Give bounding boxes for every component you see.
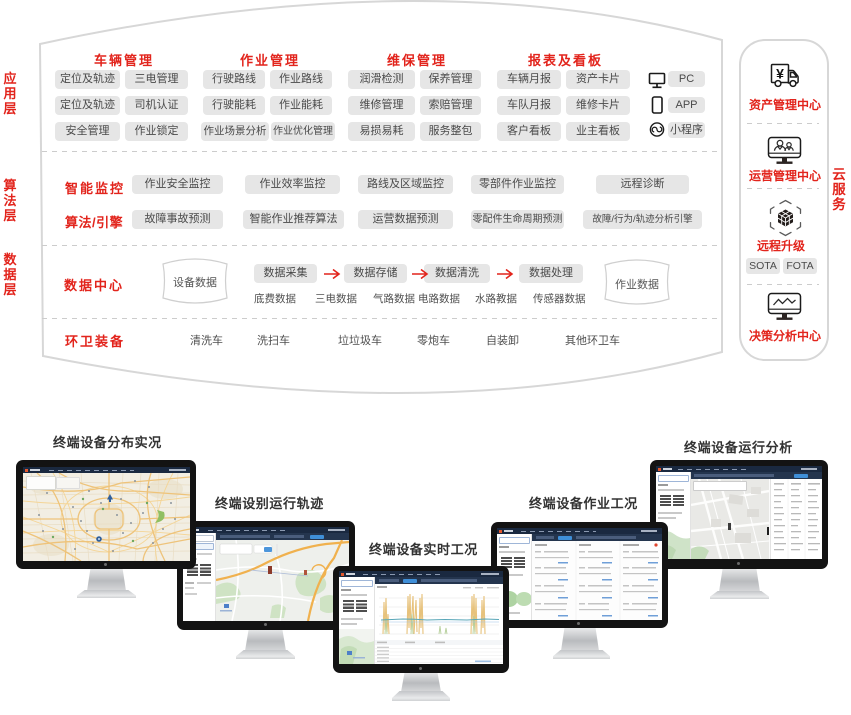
svg-text:¥: ¥ xyxy=(776,66,784,82)
